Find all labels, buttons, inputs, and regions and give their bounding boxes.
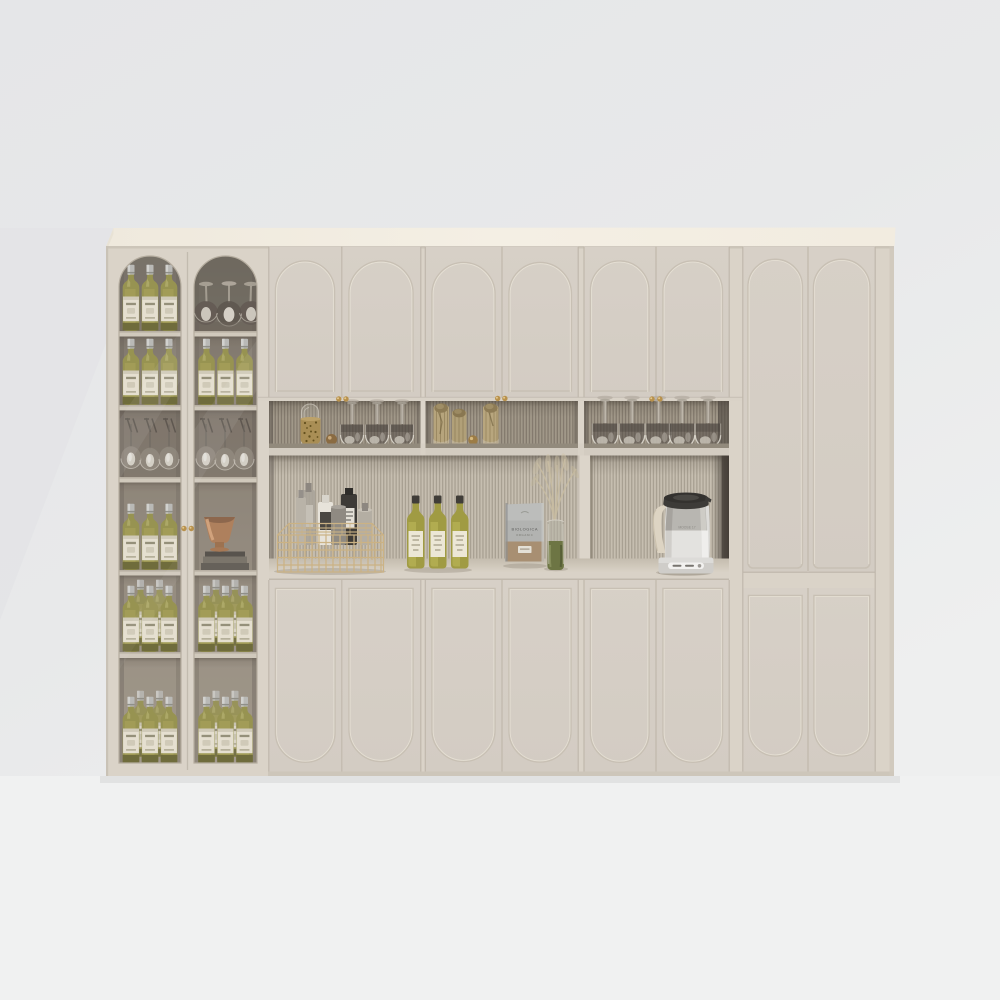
svg-text:MOOSE 17: MOOSE 17 <box>678 526 695 530</box>
svg-text:BIOLOGICA: BIOLOGICA <box>512 527 539 532</box>
svg-text:ORGANIC: ORGANIC <box>516 533 533 537</box>
